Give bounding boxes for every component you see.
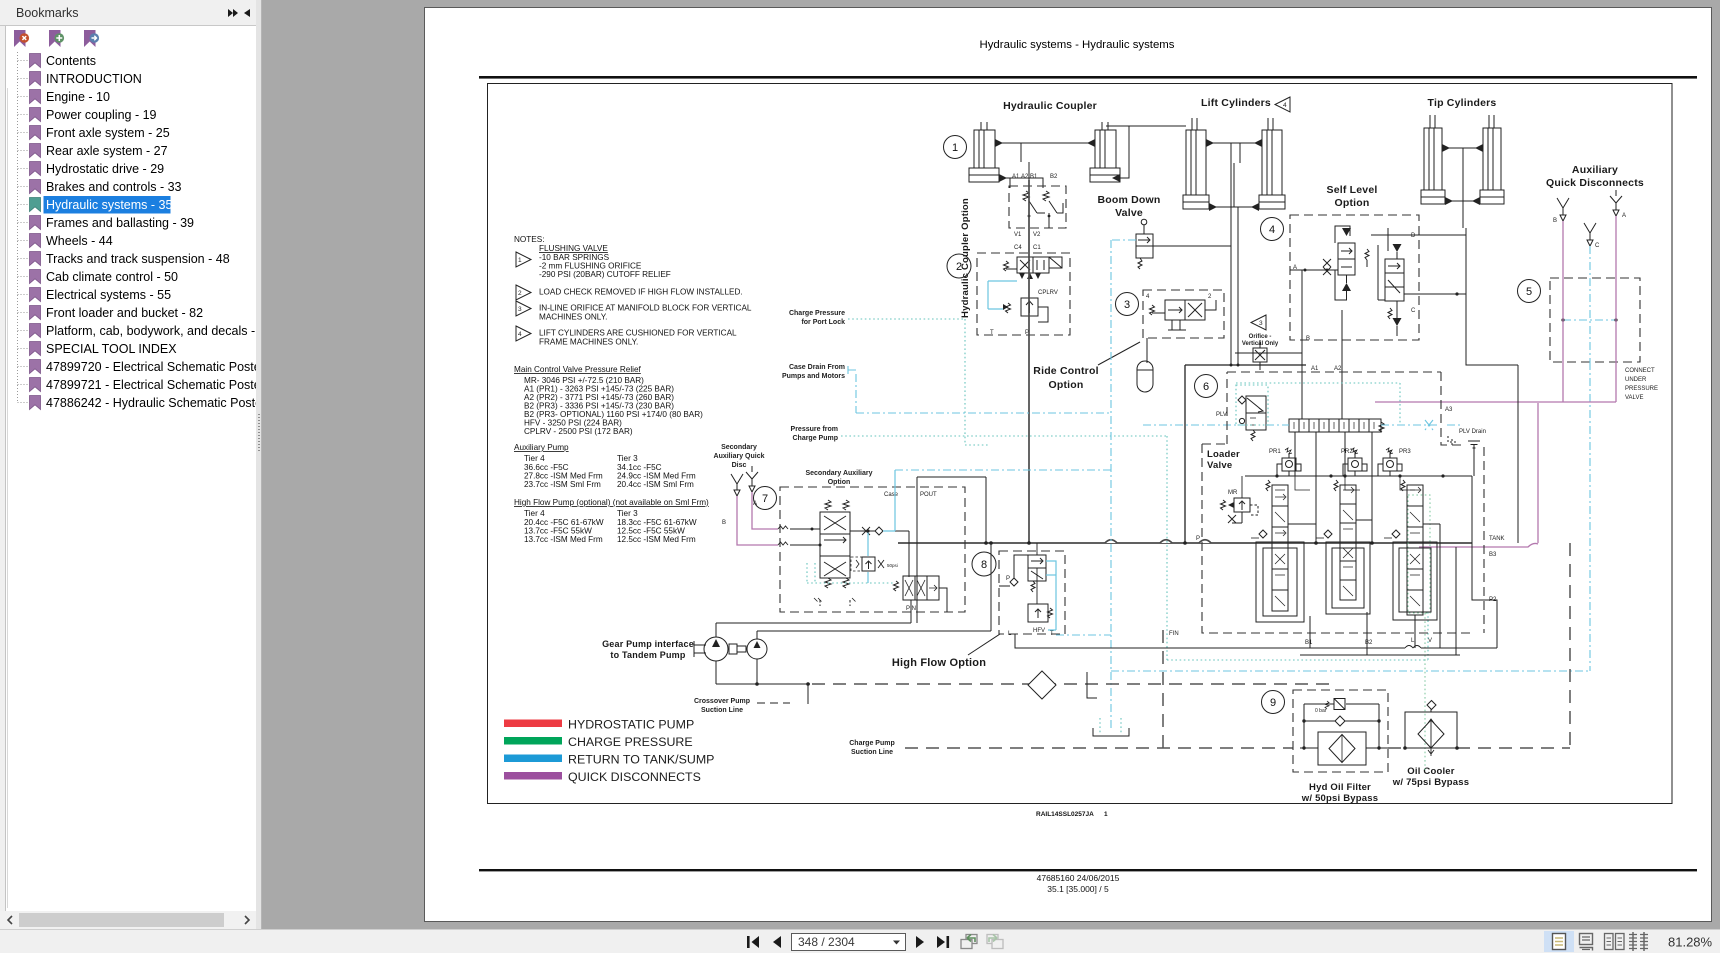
svg-text:Pumps and Motors: Pumps and Motors xyxy=(782,373,845,380)
svg-text:Option: Option xyxy=(828,479,851,486)
svg-text:3: 3 xyxy=(518,306,522,313)
svg-text:1: 1 xyxy=(518,257,522,264)
svg-text:A1: A1 xyxy=(1012,174,1020,180)
svg-text:C: C xyxy=(1595,243,1600,249)
svg-text:Main Control Valve Pressure Re: Main Control Valve Pressure Relief xyxy=(514,365,642,374)
svg-text:PLV Drain: PLV Drain xyxy=(1459,429,1486,435)
svg-text:C1: C1 xyxy=(1033,245,1041,251)
svg-text:CHARGE PRESSURE: CHARGE PRESSURE xyxy=(568,735,693,749)
svg-text:VALVE: VALVE xyxy=(1625,395,1643,401)
svg-text:PIN: PIN xyxy=(906,606,916,612)
svg-text:2: 2 xyxy=(518,290,522,297)
svg-text:12.5cc -ISM Med Frm: 12.5cc -ISM Med Frm xyxy=(617,535,696,544)
svg-text:Front axle system - 25: Front axle system - 25 xyxy=(46,126,170,140)
svg-text:FLUSHING VALVE: FLUSHING VALVE xyxy=(539,244,608,253)
svg-text:Option: Option xyxy=(1048,379,1083,391)
svg-text:Tip Cylinders: Tip Cylinders xyxy=(1428,97,1497,109)
svg-text:w/ 75psi Bypass: w/ 75psi Bypass xyxy=(1392,777,1469,788)
svg-text:MR: MR xyxy=(1228,490,1238,496)
svg-text:PRESSURE: PRESSURE xyxy=(1625,386,1658,392)
svg-text:Quick Disconnects: Quick Disconnects xyxy=(1546,177,1644,189)
svg-text:Tier 3: Tier 3 xyxy=(617,509,638,518)
svg-text:Hydraulic Coupler: Hydraulic Coupler xyxy=(1003,100,1097,112)
svg-text:Cab climate control - 50: Cab climate control - 50 xyxy=(46,270,178,284)
svg-text:RAIL14SSL0257JA: RAIL14SSL0257JA xyxy=(1036,811,1094,818)
svg-text:Hyd Oil Filter: Hyd Oil Filter xyxy=(1309,782,1371,793)
svg-text:Brakes and controls - 33: Brakes and controls - 33 xyxy=(46,180,182,194)
svg-text:7: 7 xyxy=(762,493,768,505)
svg-text:A1: A1 xyxy=(1311,366,1319,372)
svg-text:B: B xyxy=(722,520,726,526)
svg-text:Loader: Loader xyxy=(1207,449,1240,460)
svg-text:Bookmarks: Bookmarks xyxy=(16,6,79,20)
svg-text:HFV: HFV xyxy=(1033,628,1045,634)
svg-text:C: C xyxy=(1411,308,1416,314)
svg-text:PR1: PR1 xyxy=(1269,449,1281,455)
svg-text:Tier 4: Tier 4 xyxy=(524,509,545,518)
svg-text:PLV: PLV xyxy=(1216,412,1227,418)
svg-text:MACHINES ONLY.: MACHINES ONLY. xyxy=(539,313,607,322)
svg-text:6: 6 xyxy=(1203,381,1209,393)
svg-text:81.28%: 81.28% xyxy=(1668,935,1713,950)
svg-text:Tier 3: Tier 3 xyxy=(617,454,638,463)
svg-text:B1: B1 xyxy=(1305,640,1313,646)
svg-text:Charge Pump: Charge Pump xyxy=(849,740,895,747)
svg-text:Auxiliary Quick: Auxiliary Quick xyxy=(714,453,765,460)
svg-text:to Tandem Pump: to Tandem Pump xyxy=(610,650,685,660)
svg-text:Hydraulic Coupler Option: Hydraulic Coupler Option xyxy=(960,198,971,318)
svg-text:High Flow Pump (optional) (not: High Flow Pump (optional) (not available… xyxy=(514,498,709,507)
svg-text:Case: Case xyxy=(884,492,899,498)
svg-text:8: 8 xyxy=(981,559,987,571)
svg-text:LOAD CHECK REMOVED IF HIGH FLO: LOAD CHECK REMOVED IF HIGH FLOW INSTALLE… xyxy=(539,288,743,297)
svg-text:Oil Cooler: Oil Cooler xyxy=(1407,766,1454,777)
svg-text:SPECIAL TOOL INDEX: SPECIAL TOOL INDEX xyxy=(46,342,177,356)
svg-text:B3: B3 xyxy=(1489,552,1497,558)
svg-text:B: B xyxy=(1553,218,1557,224)
svg-text:Auxiliary Pump: Auxiliary Pump xyxy=(514,443,569,452)
svg-text:9: 9 xyxy=(1270,697,1276,709)
svg-text:LIFT CYLINDERS ARE CUSHIONED F: LIFT CYLINDERS ARE CUSHIONED FOR VERTICA… xyxy=(539,329,737,338)
svg-text:High Flow Option: High Flow Option xyxy=(892,657,986,669)
svg-text:for Port Lock: for Port Lock xyxy=(801,319,845,326)
svg-text:47685160 24/06/2015: 47685160 24/06/2015 xyxy=(1037,873,1120,883)
svg-text:CPLRV: CPLRV xyxy=(1038,290,1058,296)
svg-text:D: D xyxy=(1411,233,1416,239)
svg-text:Boom Down: Boom Down xyxy=(1097,194,1160,206)
svg-text:0 bar: 0 bar xyxy=(1315,708,1327,714)
svg-text:Electrical systems - 55: Electrical systems - 55 xyxy=(46,288,171,302)
svg-text:Platform, cab, bodywork, and d: Platform, cab, bodywork, and decals - xyxy=(46,324,255,338)
svg-text:P: P xyxy=(1006,576,1010,582)
svg-text:Front loader and bucket - 82: Front loader and bucket - 82 xyxy=(46,306,203,320)
svg-text:QUICK DISCONNECTS: QUICK DISCONNECTS xyxy=(568,770,701,784)
svg-text:B1: B1 xyxy=(1030,174,1038,180)
svg-text:Hydraulic systems - Hydraulic: Hydraulic systems - Hydraulic systems xyxy=(980,39,1175,51)
svg-text:13.7cc -ISM Med Frm: 13.7cc -ISM Med Frm xyxy=(524,535,603,544)
svg-text:4: 4 xyxy=(1269,224,1275,236)
svg-text:CONNECT: CONNECT xyxy=(1625,368,1655,374)
svg-text:5: 5 xyxy=(1526,286,1532,298)
svg-text:TANK: TANK xyxy=(1489,536,1505,542)
svg-text:V2: V2 xyxy=(1033,232,1041,238)
svg-text:FIN: FIN xyxy=(1169,631,1179,637)
svg-text:Gear Pump interface: Gear Pump interface xyxy=(602,639,694,649)
svg-text:20.4cc -ISM Sml Frm: 20.4cc -ISM Sml Frm xyxy=(617,480,694,489)
svg-text:Suction Line: Suction Line xyxy=(701,707,743,714)
svg-text:348 / 2304: 348 / 2304 xyxy=(798,935,855,949)
svg-text:UNDER: UNDER xyxy=(1625,377,1647,383)
svg-text:Charge Pressure: Charge Pressure xyxy=(789,310,845,317)
svg-text:50psi: 50psi xyxy=(887,563,898,568)
svg-text:Case Drain From: Case Drain From xyxy=(789,364,845,371)
svg-text:Orifice -: Orifice - xyxy=(1249,334,1272,340)
svg-text:3: 3 xyxy=(1124,299,1130,311)
svg-text:Self Level: Self Level xyxy=(1326,184,1377,196)
svg-text:A: A xyxy=(1622,213,1626,219)
svg-text:IN-LINE ORIFICE AT MANIFOLD BL: IN-LINE ORIFICE AT MANIFOLD BLOCK FOR VE… xyxy=(539,304,752,313)
svg-text:Tier 4: Tier 4 xyxy=(524,454,545,463)
svg-text:Engine - 10: Engine - 10 xyxy=(46,90,110,104)
svg-text:Auxiliary: Auxiliary xyxy=(1572,164,1618,176)
svg-text:w/ 50psi Bypass: w/ 50psi Bypass xyxy=(1301,793,1378,804)
svg-text:3: 3 xyxy=(1259,320,1263,327)
svg-text:Valve: Valve xyxy=(1207,460,1232,471)
svg-text:Charge Pump: Charge Pump xyxy=(792,435,838,442)
svg-text:V: V xyxy=(1428,638,1432,644)
svg-text:Wheels - 44: Wheels - 44 xyxy=(46,234,113,248)
svg-text:Frames and ballasting - 39: Frames and ballasting - 39 xyxy=(46,216,194,230)
svg-text:NOTES:: NOTES: xyxy=(514,235,544,244)
svg-text:Secondary: Secondary xyxy=(721,444,757,451)
svg-text:Suction Line: Suction Line xyxy=(851,749,893,756)
svg-text:1: 1 xyxy=(1104,811,1108,818)
svg-text:RETURN TO TANK/SUMP: RETURN TO TANK/SUMP xyxy=(568,753,714,767)
svg-text:Crossover Pump: Crossover Pump xyxy=(694,698,750,705)
svg-text:Contents: Contents xyxy=(46,54,96,68)
svg-text:4: 4 xyxy=(1146,294,1150,300)
svg-text:Option: Option xyxy=(1334,197,1369,209)
svg-text:L: L xyxy=(1411,638,1415,644)
svg-text:A3: A3 xyxy=(1445,407,1453,413)
svg-text:A: A xyxy=(1293,265,1297,271)
svg-text:Secondary Auxiliary: Secondary Auxiliary xyxy=(805,470,872,477)
svg-text:4: 4 xyxy=(1283,102,1287,109)
svg-text:B2: B2 xyxy=(1365,640,1373,646)
svg-text:Rear axle system - 27: Rear axle system - 27 xyxy=(46,144,168,158)
svg-text:PR3: PR3 xyxy=(1399,449,1411,455)
svg-text:47899720 - Electrical Schemati: 47899720 - Electrical Schematic Poste xyxy=(46,360,256,374)
svg-text:FRAME MACHINES ONLY.: FRAME MACHINES ONLY. xyxy=(539,338,638,347)
svg-text:POUT: POUT xyxy=(920,492,937,498)
svg-text:35.1 [35.000] / 5: 35.1 [35.000] / 5 xyxy=(1047,884,1109,894)
svg-text:B2: B2 xyxy=(1050,174,1058,180)
svg-text:2: 2 xyxy=(956,261,962,273)
svg-text:B: B xyxy=(1306,336,1310,342)
svg-text:V1: V1 xyxy=(1014,232,1022,238)
svg-text:P: P xyxy=(1196,536,1200,542)
svg-text:2: 2 xyxy=(1208,294,1212,300)
svg-text:C4: C4 xyxy=(1014,245,1022,251)
svg-text:Tracks and track suspension -: Tracks and track suspension - 48 xyxy=(46,252,230,266)
svg-text:47886242 - Hydraulic Schematic: 47886242 - Hydraulic Schematic Poste xyxy=(46,396,256,410)
svg-text:Ride Control: Ride Control xyxy=(1033,365,1098,377)
svg-text:Pressure from: Pressure from xyxy=(791,426,838,433)
svg-text:Lift Cylinders: Lift Cylinders xyxy=(1201,97,1271,109)
svg-text:4: 4 xyxy=(518,331,522,338)
svg-text:Valve: Valve xyxy=(1115,207,1143,219)
svg-text:Disc: Disc xyxy=(732,462,747,469)
svg-text:47899721 - Electrical Schemati: 47899721 - Electrical Schematic Poste xyxy=(46,378,256,392)
svg-text:-290 PSI (20BAR) CUTOFF RELIEF: -290 PSI (20BAR) CUTOFF RELIEF xyxy=(539,270,671,279)
svg-text:1: 1 xyxy=(952,142,958,154)
svg-text:A2: A2 xyxy=(1334,366,1342,372)
svg-text:HYDROSTATIC PUMP: HYDROSTATIC PUMP xyxy=(568,718,694,732)
svg-text:Hydrostatic drive - 29: Hydrostatic drive - 29 xyxy=(46,162,164,176)
svg-text:23.7cc -ISM Sml Frm: 23.7cc -ISM Sml Frm xyxy=(524,480,601,489)
svg-text:INTRODUCTION: INTRODUCTION xyxy=(46,72,142,86)
svg-text:Hydraulic systems - 35: Hydraulic systems - 35 xyxy=(46,198,172,212)
svg-text:A2: A2 xyxy=(1021,174,1029,180)
svg-text:CPLRV - 2500 PSI (172 BAR): CPLRV - 2500 PSI (172 BAR) xyxy=(524,427,633,436)
svg-text:Power coupling - 19: Power coupling - 19 xyxy=(46,108,157,122)
